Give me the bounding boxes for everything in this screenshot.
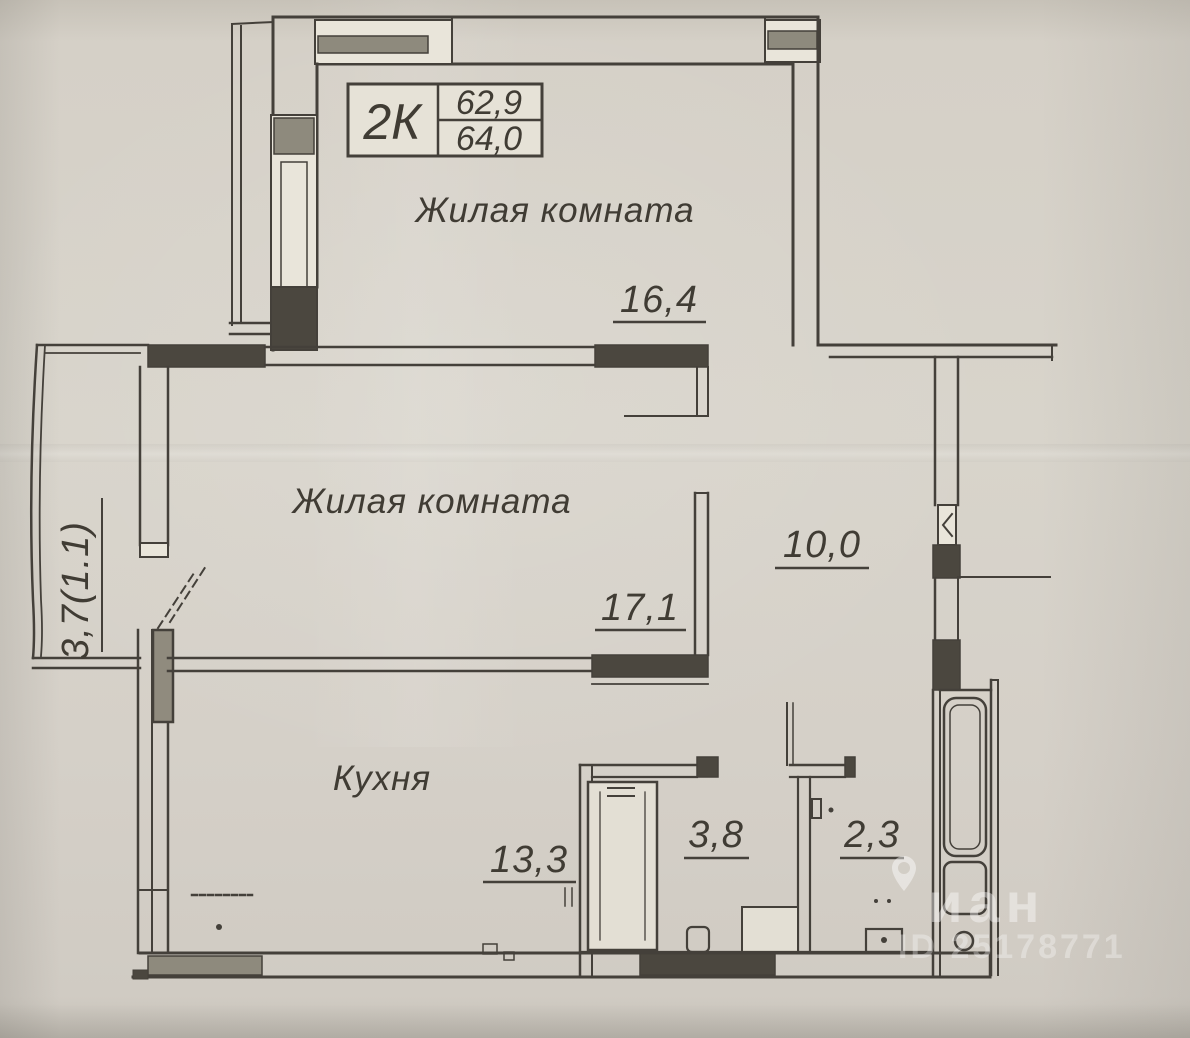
floorplan-photo: 2К 62,9 64,0 Жилая комната 16,4 Жилая ко… [0, 0, 1190, 1038]
svg-text:16,4: 16,4 [620, 279, 698, 321]
window-top-right [765, 20, 820, 62]
svg-text:10,0: 10,0 [783, 524, 861, 566]
svg-text:3,8: 3,8 [688, 814, 744, 856]
floorplan-drawing: 2К 62,9 64,0 Жилая комната 16,4 Жилая ко… [0, 0, 1190, 1038]
bathroom-cabinet-icon [588, 782, 657, 950]
toilet-door-icon [812, 799, 834, 818]
entrance-wall [933, 357, 1050, 690]
bottom-wall [133, 952, 990, 979]
bathtub-icon [944, 698, 986, 856]
room-area-kitchen: 13,3 [483, 839, 576, 882]
apartment-type-label: 2К [362, 94, 423, 150]
map-pin-icon [892, 856, 916, 891]
watermark-brand: иан [928, 871, 1045, 934]
kitchen-sink-icon [483, 888, 572, 960]
room-area-bathroom: 3,8 [684, 814, 749, 858]
sink-icon [866, 899, 902, 952]
svg-text:2,3: 2,3 [843, 814, 900, 856]
window-top-left [315, 20, 452, 64]
room-label-living-2: Жилая комната [290, 482, 571, 521]
room-area-hallway: 10,0 [775, 524, 869, 568]
niche-outline [625, 367, 708, 416]
mid-right-wall [695, 493, 708, 655]
mid-top-wall [148, 345, 708, 367]
radiator-icon [192, 895, 252, 930]
window-left-wall [271, 115, 317, 299]
room-label-kitchen: Кухня [333, 759, 431, 798]
living-area-value: 62,9 [456, 84, 522, 122]
wall-pier-left [271, 287, 317, 350]
neighbour-wall [818, 345, 1056, 360]
title-block: 2К 62,9 64,0 [348, 84, 542, 158]
balcony-door [153, 566, 206, 722]
right-wall-top-room [793, 17, 818, 345]
upper-balcony-outline [230, 22, 277, 334]
svg-text:17,1: 17,1 [601, 587, 679, 629]
washing-machine-icon [742, 907, 798, 952]
svg-text:13,3: 13,3 [490, 839, 568, 881]
room-area-living-2: 17,1 [595, 587, 686, 630]
svg-text:3,7(1.1): 3,7(1.1) [55, 521, 97, 660]
room-area-toilet: 2,3 [840, 814, 904, 858]
room-area-living-1: 16,4 [613, 279, 706, 322]
total-area-value: 64,0 [456, 120, 522, 158]
kitchen-top-wall [168, 655, 708, 684]
watermark-listing-id: ID 25178771 [898, 928, 1126, 966]
watermark: иан ID 25178771 [892, 856, 1126, 966]
room-label-living-1: Жилая комната [413, 191, 694, 230]
room-area-balcony: 3,7(1.1) [55, 498, 102, 660]
